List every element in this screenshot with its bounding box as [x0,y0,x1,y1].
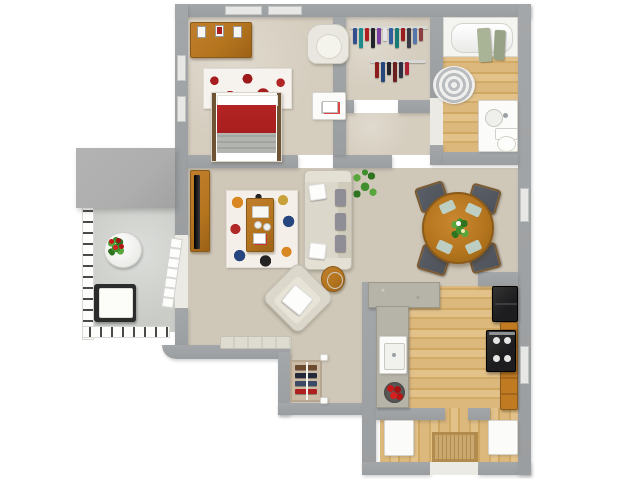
balcony-railing-bottom [82,326,170,338]
balcony-railing-left [82,200,94,340]
entry-doormat [432,432,478,462]
centerpiece-bloom [461,229,465,233]
swatch-item [419,28,423,41]
sofa-pillow-white-bottom [308,242,327,260]
bed-red-blanket [217,105,276,133]
balcony-flower-pot [107,237,125,257]
kitchen-entry-wall [376,408,445,420]
frame-photo-red [217,27,222,34]
kitchen-west-wall [362,282,376,468]
vanity-faucet [503,113,508,118]
living-room-bench [220,336,292,349]
sofa-armrest-top [305,171,351,182]
closet-clothes-lower [374,62,410,82]
closet-clothes-upper [352,28,424,48]
balcony-roof-overhang [76,148,175,208]
entry-open-door-left [384,420,414,456]
refrigerator [492,286,518,322]
bedroom-window-top-1 [225,6,262,15]
fridge-door-seam [495,303,517,305]
coffee-table [246,198,274,252]
sink-drain [392,353,396,357]
bathroom-striped-rug [433,66,475,104]
coffee-mug [263,223,271,231]
swatch-item [405,62,409,75]
swatch-item [381,62,385,82]
front-door-opening [430,462,478,475]
range-stove [486,330,516,372]
swatch-item [399,62,403,78]
vanity-sink [485,109,503,127]
bedroom-ottoman [312,92,346,120]
centerpiece-bloom [456,221,461,226]
bathroom-west-wall-lower [430,145,443,165]
exterior-wall-right [518,4,531,475]
swatch-item [413,28,417,44]
exterior-wall-bottom-left [362,462,430,475]
swatch-item [395,28,399,48]
placemat [436,239,454,254]
armchair-seat-cushion [316,34,342,59]
red-flowers [109,239,114,244]
tv-stand [190,170,210,252]
potted-plant [349,167,381,203]
shoe-closet-door-jamb-bottom [320,397,328,404]
balcony-table [104,232,142,268]
coffee-mug [254,221,262,229]
swatch-item [377,28,381,44]
sofa-pillow-white-top [308,183,327,201]
stove-burner [493,337,500,344]
swatch-item [407,28,411,48]
bed-rail-left [212,93,216,161]
closet-south-wall-left [346,100,354,113]
swatch-item [393,62,397,82]
bath-towel [477,28,492,63]
bath-towel [493,30,506,61]
shoe-rack [290,360,322,402]
swatch-item [375,62,379,78]
swatch-item [353,28,357,44]
shoe-rack-divider [306,362,308,400]
kitchen-sink-unit [379,336,407,374]
sofa-pillow-gray [335,213,346,230]
bedroom-window-left-1 [177,55,186,81]
swatch-item [365,28,369,41]
bed [211,92,282,162]
apple-bowl [384,382,405,403]
bedroom-armchair [307,24,349,64]
hallway-floor [346,113,430,155]
red-apples [387,385,394,392]
dining-kitchen-wall [478,272,518,286]
bathroom-south-wall [443,152,518,165]
swatch-item [401,28,405,41]
swatch-item [387,62,391,75]
swatch-item [359,28,363,48]
sofa [304,170,352,270]
entry-open-door-right [488,420,518,455]
floor-plan-render [0,0,639,479]
table-lamp [327,272,343,289]
swatch-item [389,28,393,44]
kitchen-window-right [520,346,529,384]
bedroom-window-top-2 [268,6,302,15]
balcony-chair [94,284,136,322]
placemat [465,239,483,254]
placemat [465,202,483,217]
magazines [322,101,338,113]
picture-frame [197,26,206,38]
coffee-table-tray [252,206,269,218]
kitchen-entry-wall-stub [468,408,490,420]
bedroom-dresser [190,22,252,58]
toilet-bowl [497,136,516,152]
sofa-pillow-gray [335,189,346,206]
exterior-wall-south-nook [278,403,370,415]
placemat [439,199,457,214]
dining-centerpiece-flowers [450,218,470,240]
shoe-closet-door-jamb-top [320,354,328,361]
coffee-table-book [253,233,266,244]
flat-tv [194,175,200,249]
picture-frame [233,26,242,38]
stove-handle [489,332,515,335]
dining-window-right [520,188,529,222]
bed-gray-throw [217,133,276,153]
bathroom-door-opening [430,98,443,145]
kitchen-counter-peninsula [368,282,440,308]
dining-table [422,192,494,264]
swatch-item [383,28,387,41]
balcony-chair-cushion [99,288,133,318]
bed-foot-sheet [217,153,276,161]
swatch-item [371,28,375,48]
sofa-pillow-gray [335,235,346,252]
bedroom-window-left-2 [177,96,186,122]
